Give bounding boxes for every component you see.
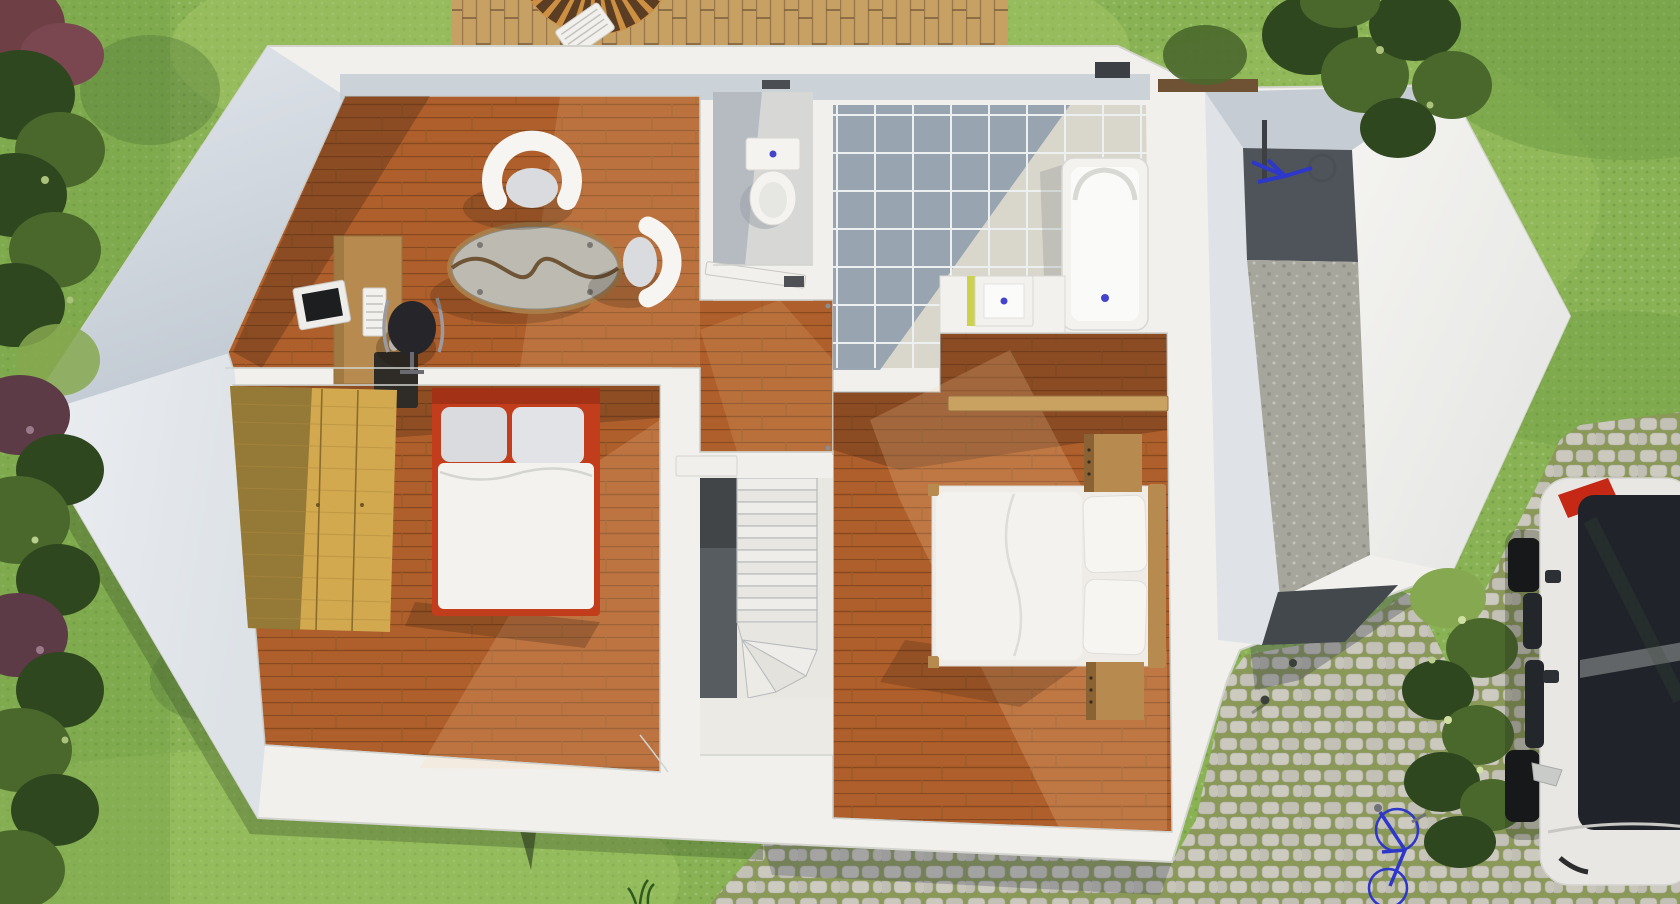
- stair-treads: [737, 478, 817, 622]
- garage-pole: [1262, 120, 1267, 182]
- flush-button: [770, 151, 777, 158]
- bed1-pillow: [512, 407, 584, 464]
- bike-seat: [1374, 804, 1382, 812]
- armchair-seat: [623, 237, 657, 287]
- door-handle: [826, 446, 831, 451]
- path-bollard: [1261, 696, 1270, 705]
- bed2-pillow: [1083, 579, 1148, 655]
- stair-landing: [700, 698, 833, 755]
- bed2-headboard: [1148, 484, 1166, 668]
- car-side-window: [1525, 660, 1544, 748]
- white-car: [1505, 478, 1680, 885]
- roof-vent-slot: [1095, 62, 1130, 78]
- car-wheel-front: [1505, 750, 1540, 822]
- door-edge-shadow: [784, 276, 804, 287]
- computer-monitor: [293, 280, 352, 330]
- car-door-handle: [1543, 670, 1559, 683]
- bed1-duvet: [438, 463, 594, 609]
- bed2-duvet: [936, 492, 1082, 660]
- wall-shelf: [948, 396, 1168, 411]
- bed2-post: [928, 484, 939, 496]
- stair-ledge: [676, 456, 737, 476]
- wardrobe: [230, 386, 397, 632]
- toilet-vent-slot: [762, 80, 790, 89]
- nightstand-bottom: [1086, 662, 1144, 720]
- bed2-pillow: [1083, 495, 1148, 573]
- path-bollard: [1289, 659, 1297, 667]
- armchair-seat: [506, 168, 558, 208]
- toilet-seat: [759, 182, 787, 218]
- stair-top-wall: [737, 455, 833, 478]
- floorplan-render: [0, 0, 1680, 904]
- bathtub: [1062, 158, 1148, 330]
- stairwell-dark-top: [700, 478, 737, 548]
- bed2-post: [928, 656, 939, 668]
- car-wheel-rear: [1508, 538, 1540, 592]
- bed1-headboard: [432, 388, 600, 404]
- sink: [967, 276, 1033, 326]
- bed1-pillow: [441, 407, 507, 462]
- tub-drain: [1101, 294, 1109, 302]
- car-door-handle: [1545, 570, 1561, 583]
- sink-accent: [967, 276, 975, 326]
- car-side-window: [1523, 593, 1542, 649]
- bed-1: [405, 388, 600, 648]
- door-handle: [826, 304, 831, 309]
- chair-seat: [388, 301, 436, 355]
- sink-drain: [1001, 298, 1008, 305]
- nightstand-top: [1084, 434, 1142, 492]
